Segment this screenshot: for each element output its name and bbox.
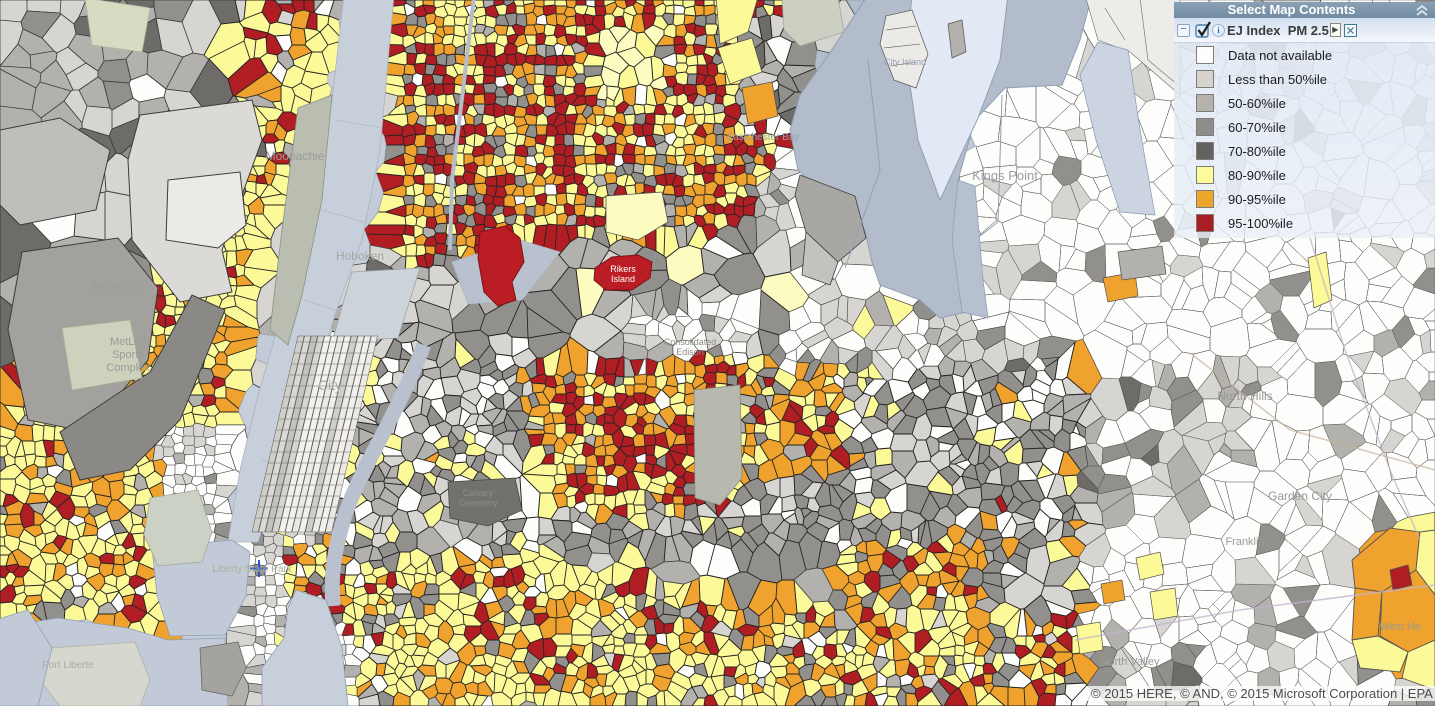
svg-text:Franklin: Franklin: [1225, 536, 1264, 548]
svg-text:West He: West He: [1379, 621, 1421, 633]
svg-text:Complex: Complex: [106, 362, 150, 374]
svg-text:Liberty State Park: Liberty State Park: [212, 564, 292, 575]
svg-text:Kings Point: Kings Point: [972, 168, 1038, 183]
svg-text:North Valley: North Valley: [1100, 656, 1160, 668]
svg-text:Rikers: Rikers: [610, 264, 636, 274]
svg-text:Calvary: Calvary: [463, 488, 494, 498]
svg-text:North Hills: North Hills: [1217, 389, 1272, 403]
svg-text:Garden City: Garden City: [1268, 489, 1332, 503]
svg-text:Island: Island: [611, 274, 635, 284]
svg-text:Edison: Edison: [676, 347, 704, 357]
svg-text:Hoboken: Hoboken: [336, 249, 384, 263]
svg-text:Secaucus: Secaucus: [91, 278, 144, 292]
svg-text:Cemetery: Cemetery: [458, 498, 498, 508]
svg-text:City Island: City Island: [884, 57, 926, 67]
svg-text:Moonachie: Moonachie: [266, 149, 325, 163]
svg-text:MetLife: MetLife: [110, 336, 146, 348]
svg-text:Consolidated: Consolidated: [664, 337, 717, 347]
svg-text:Port Liberte: Port Liberte: [42, 660, 94, 671]
svg-text:Sports: Sports: [112, 349, 144, 361]
svg-text:City: City: [318, 377, 342, 393]
svg-text:Eastchester Bay: Eastchester Bay: [727, 132, 800, 143]
